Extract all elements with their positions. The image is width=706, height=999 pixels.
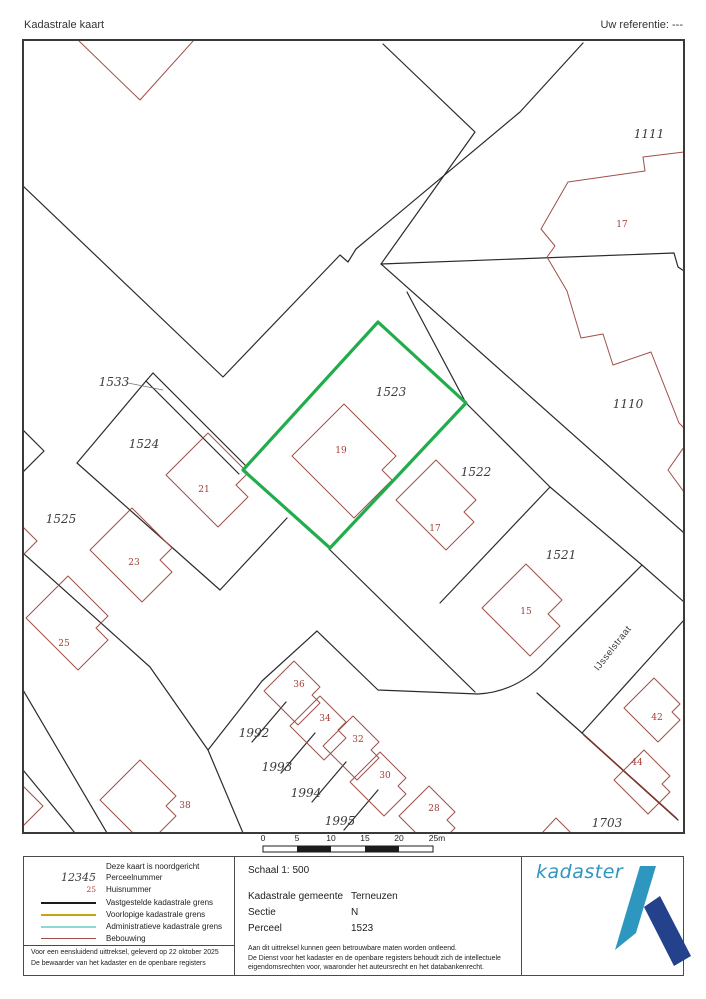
disclaimer-line: De Dienst voor het kadaster en de openba… xyxy=(248,954,516,964)
parcel-boundaries xyxy=(23,43,684,833)
house-number-label: 28 xyxy=(428,804,440,814)
scale-tick-label: 5 xyxy=(295,833,300,843)
legend-row-parcelnumber: 12345 Perceelnummer xyxy=(24,872,234,883)
house-number-label: 15 xyxy=(520,607,532,617)
parcel-number-label: 1703 xyxy=(592,816,623,830)
scale-text: Schaal 1: 500 xyxy=(248,865,309,876)
disclaimer-line: eigendomsrechten voor, waaronder het aut… xyxy=(248,963,516,973)
info-row-sectie: Sectie N xyxy=(248,907,276,918)
building-wall-dark xyxy=(584,735,676,818)
cadastral-map-page: Kadastrale kaart Uw referentie: --- xyxy=(0,0,706,999)
house-number-label: 25 xyxy=(58,639,70,649)
panel-divider xyxy=(24,945,234,946)
scale-tick-label: 0 xyxy=(261,833,266,843)
parcel-number-label: 1521 xyxy=(546,548,577,562)
legend-row-bebouwing: Bebouwing xyxy=(24,933,234,944)
parcel-number-label: 1995 xyxy=(325,814,356,828)
legend-info-panel: Deze kaart is noordgericht 12345 Perceel… xyxy=(23,856,684,976)
street-name-label: IJsselstraat xyxy=(592,624,634,673)
legend-parcel-sample: 12345 xyxy=(34,871,96,884)
info-value: 1523 xyxy=(351,923,373,934)
scale-tick-label: 10 xyxy=(326,833,336,843)
house-number-label: 34 xyxy=(319,714,331,724)
parcel-number-label: 1522 xyxy=(461,465,492,479)
disclaimer-line: Aan dit uittreksel kunnen geen betrouwba… xyxy=(248,944,516,954)
panel-divider xyxy=(234,857,235,975)
info-key: Kadastrale gemeente xyxy=(248,891,343,902)
parcel-number-label: 1993 xyxy=(262,760,293,774)
parcel-number-label: 1992 xyxy=(239,726,270,740)
legend-label: Bebouwing xyxy=(106,934,146,943)
info-value: N xyxy=(351,907,358,918)
legend-line-red xyxy=(34,938,96,939)
legend-line-yellow xyxy=(34,914,96,916)
highlighted-parcel-1523 xyxy=(243,322,466,548)
info-key: Sectie xyxy=(248,907,276,918)
house-number-label: 42 xyxy=(651,713,662,723)
legend-label: Voorlopige kadastrale grens xyxy=(106,910,205,919)
label-leader-line xyxy=(128,383,163,390)
footer-line-1: Voor een eensluidend uittreksel, gelever… xyxy=(31,949,219,956)
house-number-label: 44 xyxy=(631,758,643,768)
house-number-label: 38 xyxy=(179,801,191,811)
legend-label: Administratieve kadastrale grens xyxy=(106,922,222,931)
map-border xyxy=(23,40,684,833)
parcel-number-label: 1110 xyxy=(613,397,644,411)
parcel-number-label: 1525 xyxy=(46,512,77,526)
parcel-number-label: 1111 xyxy=(634,127,665,141)
legend-label: Huisnummer xyxy=(106,885,151,894)
legend-row-housenumber: 25 Huisnummer xyxy=(24,884,234,895)
legend-house-sample: 25 xyxy=(34,885,96,894)
scale-tick-label: 25m xyxy=(429,833,446,843)
legend-label: Perceelnummer xyxy=(106,873,162,882)
house-number-label: 19 xyxy=(335,446,347,456)
info-row-perceel: Perceel 1523 xyxy=(248,923,282,934)
scale-bar xyxy=(263,846,433,852)
info-key: Perceel xyxy=(248,923,282,934)
house-number-label: 36 xyxy=(293,680,305,690)
legend-line-black xyxy=(34,902,96,904)
legend-row-administratieve-grens: Administratieve kadastrale grens xyxy=(24,921,234,932)
cadastral-map: IJsselstraat 153315241525152315221521111… xyxy=(0,0,706,999)
scale-tick-label: 20 xyxy=(394,833,404,843)
house-number-label: 30 xyxy=(379,771,391,781)
house-number-label: 32 xyxy=(352,735,363,745)
parcel-number-label: 1523 xyxy=(376,385,407,399)
footer-line-2: De bewaarder van het kadaster en de open… xyxy=(31,960,206,967)
kadaster-logo-icon xyxy=(586,859,706,975)
house-number-label: 17 xyxy=(616,220,628,230)
scale-tick-label: 15 xyxy=(360,833,370,843)
legend-label: Deze kaart is noordgericht xyxy=(106,862,199,871)
legend-line-cyan xyxy=(34,926,96,928)
legend-label: Vastgestelde kadastrale grens xyxy=(106,898,213,907)
house-number-label: 21 xyxy=(198,485,209,495)
parcel-number-label: 1533 xyxy=(99,375,130,389)
legend-row-voorlopige-grens: Voorlopige kadastrale grens xyxy=(24,909,234,920)
info-row-gemeente: Kadastrale gemeente Terneuzen xyxy=(248,891,343,902)
house-number-label: 17 xyxy=(429,524,441,534)
legend-row-vastgestelde-grens: Vastgestelde kadastrale grens xyxy=(24,897,234,908)
disclaimer-text: Aan dit uittreksel kunnen geen betrouwba… xyxy=(248,944,516,973)
parcel-number-label: 1994 xyxy=(291,786,322,800)
panel-divider xyxy=(521,857,522,975)
info-value: Terneuzen xyxy=(351,891,398,902)
house-number-label: 23 xyxy=(128,558,140,568)
parcel-number-label: 1524 xyxy=(129,437,160,451)
